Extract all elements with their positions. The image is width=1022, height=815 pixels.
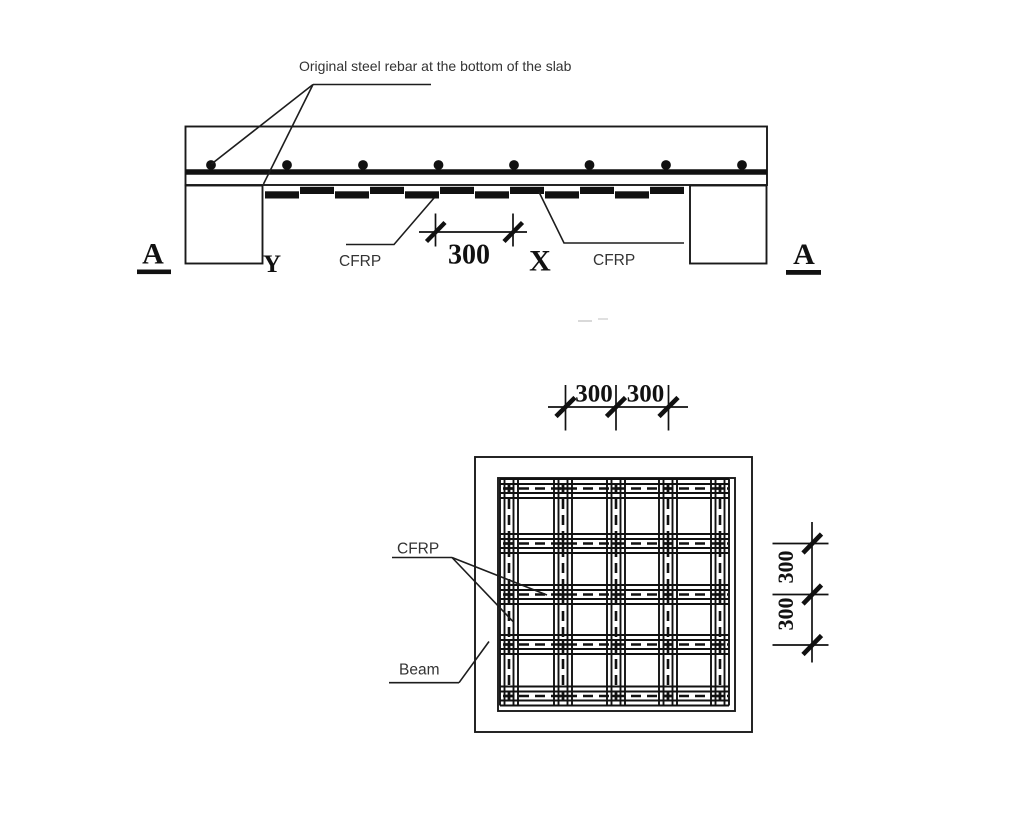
svg-text:Y: Y [263,251,281,278]
svg-text:300: 300 [773,551,798,584]
svg-text:300: 300 [575,381,613,408]
svg-text:300: 300 [773,598,798,631]
svg-text:Original steel rebar at the bo: Original steel rebar at the bottom of th… [299,58,572,74]
svg-text:CFRP: CFRP [339,253,381,270]
svg-text:A: A [793,238,815,271]
svg-text:A: A [142,238,164,271]
svg-text:X: X [529,245,551,278]
svg-text:Beam: Beam [399,662,440,679]
svg-text:CFRP: CFRP [397,541,439,558]
svg-text:300: 300 [627,381,665,408]
svg-text:300: 300 [448,240,490,271]
svg-text:CFRP: CFRP [593,252,635,269]
